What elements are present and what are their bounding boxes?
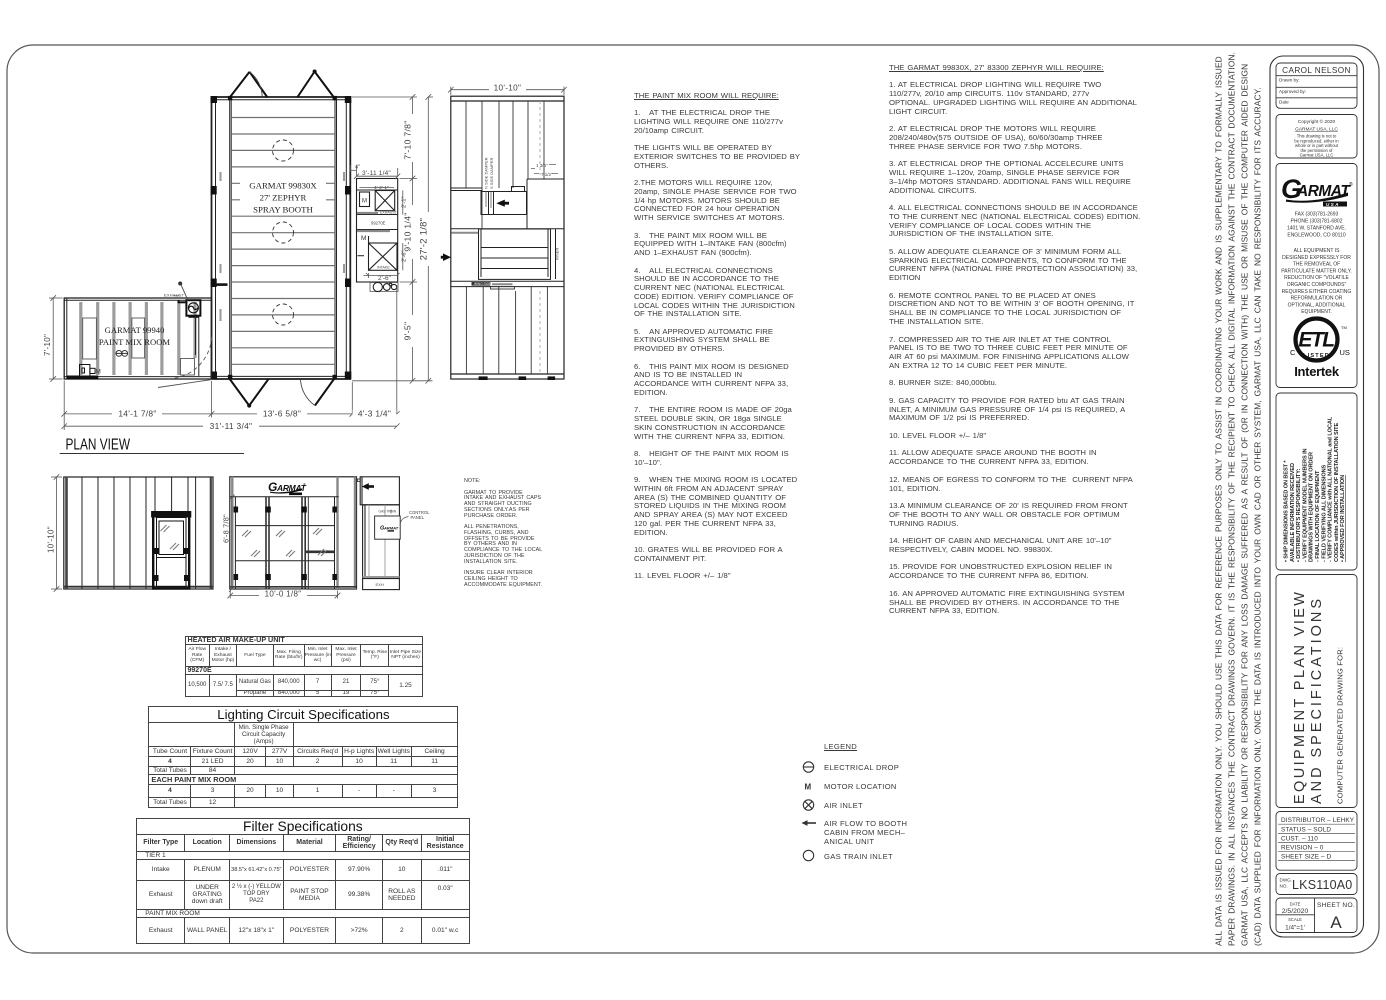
svg-text:- FIELD VERIFYING ALL DIMENSIO: - FIELD VERIFYING ALL DIMENSIONS	[1321, 464, 1327, 562]
svg-text:GARMAT USA, LLC ACCEPTS NO LIA: GARMAT USA, LLC ACCEPTS NO LIABILITY OR …	[1240, 64, 1250, 946]
svg-text:CUST. – 110: CUST. – 110	[1281, 836, 1318, 843]
svg-text:SCALE: SCALE	[1288, 917, 1302, 922]
svg-text:DWG.: DWG.	[1280, 878, 1293, 883]
svg-text:Drawn by:: Drawn by:	[1279, 78, 1300, 83]
svg-text:A: A	[1330, 913, 1342, 932]
svg-text:OPTIONAL, ADDITIONAL: OPTIONAL, ADDITIONAL	[1288, 302, 1346, 308]
svg-text:• DISTRIBUTOR'S RESPONSIBILIT: • DISTRIBUTOR'S RESPONSIBILITY:	[1296, 469, 1302, 562]
svg-text:EQUIPMENT.: EQUIPMENT.	[1301, 309, 1332, 315]
svg-text:DESIGNED EXPRESSLY FOR: DESIGNED EXPRESSLY FOR	[1282, 255, 1351, 261]
svg-text:SHEET NO.: SHEET NO.	[1317, 902, 1355, 909]
svg-text:- FINAL LOCATION OF EQUIPMENT: - FINAL LOCATION OF EQUIPMENT	[1315, 470, 1321, 562]
svg-text:STATUS – SOLD: STATUS – SOLD	[1281, 827, 1331, 834]
svg-text:TM: TM	[1341, 325, 1347, 330]
svg-text:2/5/2020: 2/5/2020	[1282, 908, 1309, 915]
svg-text:DRAWINGS WITH EQUIPMENT ON ORD: DRAWINGS WITH EQUIPMENT ON ORDER	[1309, 452, 1315, 562]
svg-text:Copyright © 2020: Copyright © 2020	[1298, 118, 1336, 125]
svg-text:• APPROVED FOR INSTALLATION: • APPROVED FOR INSTALLATION	[1340, 475, 1346, 562]
svg-text:C: C	[1290, 348, 1296, 357]
svg-text:ETL: ETL	[1298, 329, 1334, 352]
svg-text:REFORMULATION OR: REFORMULATION OR	[1291, 296, 1343, 302]
svg-text:CODES within JURISDICTION OF I: CODES within JURISDICTION OF INSTALLATIO…	[1334, 423, 1340, 562]
svg-text:GARMAT USA, LLC: GARMAT USA, LLC	[1295, 127, 1338, 133]
svg-text:ENGLEWOOD, CO 80110: ENGLEWOOD, CO 80110	[1287, 233, 1345, 239]
svg-text:1/4"=1': 1/4"=1'	[1285, 925, 1305, 932]
svg-text:AND SPECIFICATIONS: AND SPECIFICATIONS	[1309, 599, 1325, 804]
svg-text:LKS110A0: LKS110A0	[1292, 878, 1352, 892]
svg-text:DATE: DATE	[1290, 902, 1301, 907]
svg-text:PAPER DRAWINGS. IN ALL INSTANC: PAPER DRAWINGS. IN ALL INSTANCES THE CON…	[1227, 52, 1237, 946]
svg-text:DISTRIBUTOR – LEHKY: DISTRIBUTOR – LEHKY	[1281, 817, 1355, 824]
svg-text:®: ®	[1349, 181, 1353, 188]
svg-text:PARTICULATE MATTER ONLY.: PARTICULATE MATTER ONLY.	[1281, 268, 1352, 274]
svg-text:REDUCTION OF "VOLATILE: REDUCTION OF "VOLATILE	[1284, 275, 1349, 281]
svg-text:USA: USA	[1326, 202, 1340, 207]
svg-text:1401 W. STANFORD AVE.: 1401 W. STANFORD AVE.	[1287, 226, 1346, 232]
svg-text:LISTED: LISTED	[1303, 353, 1330, 359]
svg-text:- VERIFY COMPLIANCE with ALL N: - VERIFY COMPLIANCE with ALL NATIONAL an…	[1328, 416, 1334, 562]
svg-text:PHONE (303)781-6802: PHONE (303)781-6802	[1291, 219, 1343, 225]
svg-text:CAROL NELSON: CAROL NELSON	[1282, 66, 1351, 75]
svg-text:Date: Date	[1279, 99, 1289, 104]
svg-text:AVAILABLE INFORMATION RECEIVED: AVAILABLE INFORMATION RECEIVED	[1290, 463, 1296, 562]
svg-text:ALL DATA IS ISSUED FOR INFORMA: ALL DATA IS ISSUED FOR INFORMATION ONLY.…	[1214, 56, 1224, 946]
svg-text:COMPUTER GENERATED DRAWING: COMPUTER GENERATED DRAWING FOR:	[1336, 647, 1345, 804]
svg-text:NO.: NO.	[1280, 884, 1288, 889]
svg-text:Intertek: Intertek	[1294, 364, 1340, 379]
svg-text:THE REMOVEAL OF: THE REMOVEAL OF	[1293, 262, 1340, 268]
svg-text:EQUIPMENT PLAN VIEW: EQUIPMENT PLAN VIEW	[1292, 592, 1308, 804]
svg-text:REQUIRES EITHER COATING: REQUIRES EITHER COATING	[1282, 289, 1352, 295]
svg-text:US: US	[1340, 348, 1350, 357]
svg-text:- VERIFY EQUIPMENT MODEL NUMBE: - VERIFY EQUIPMENT MODEL NUMBERS IN	[1302, 448, 1308, 562]
svg-text:Garmat USA, LLC: Garmat USA, LLC	[1300, 153, 1334, 158]
svg-text:ORGANIC COMPOUNDS": ORGANIC COMPOUNDS"	[1287, 282, 1347, 288]
svg-text:(CAD) DATA SUPPLIED FOR INFORM: (CAD) DATA SUPPLIED FOR INFORMATION ONLY…	[1253, 87, 1263, 946]
svg-text:REVISION – 0: REVISION – 0	[1281, 845, 1324, 852]
svg-text:Approved by:: Approved by:	[1279, 89, 1306, 94]
svg-text:• SHIP DIMENSIONS BASED ON BE: • SHIP DIMENSIONS BASED ON BEST *	[1284, 460, 1290, 562]
svg-text:ALL EQUIPMENT IS: ALL EQUIPMENT IS	[1294, 248, 1341, 254]
svg-text:SHEET SIZE – D: SHEET SIZE – D	[1281, 854, 1332, 861]
svg-text:FAX (303)781-2693: FAX (303)781-2693	[1295, 212, 1339, 218]
svg-text:ARMAT: ARMAT	[1296, 183, 1351, 200]
